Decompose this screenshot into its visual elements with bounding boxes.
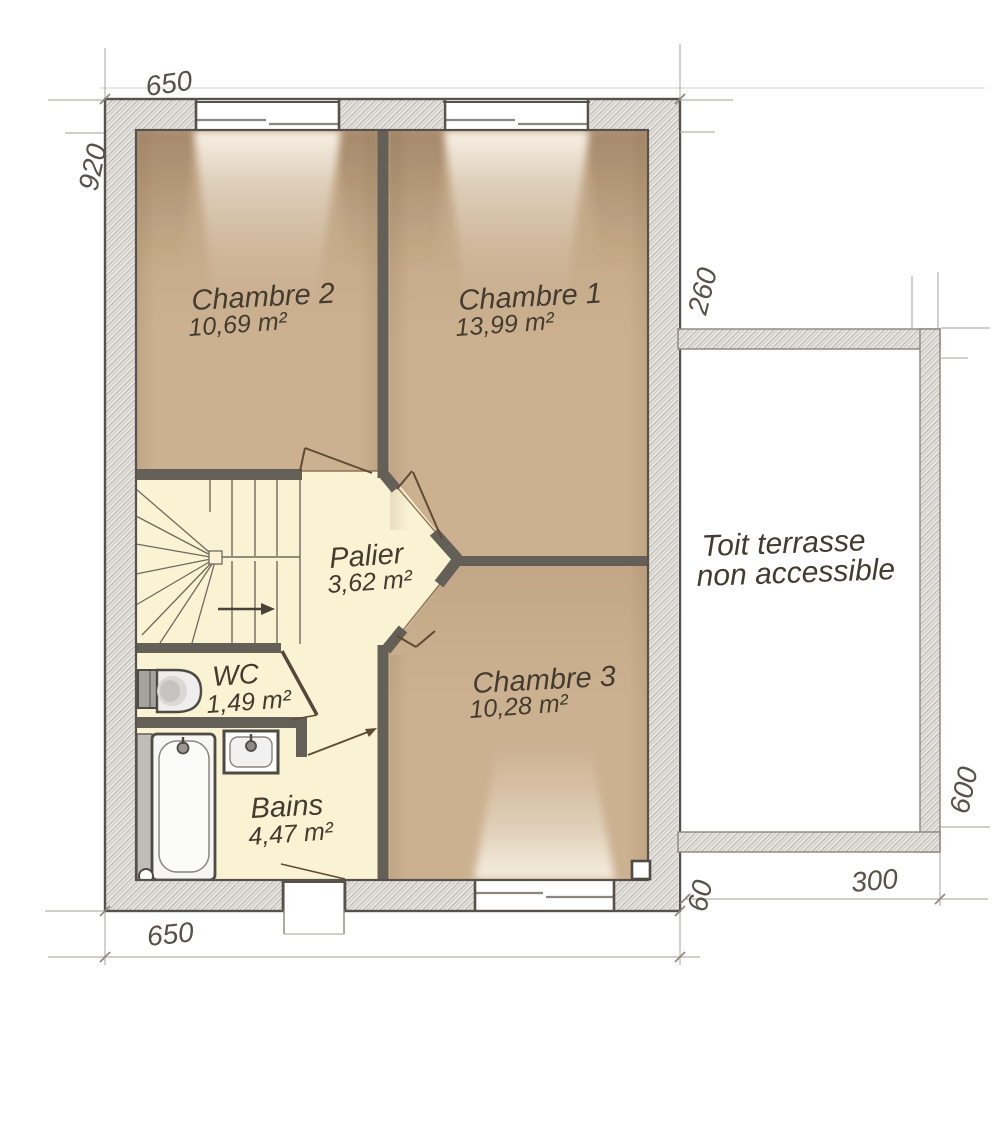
svg-text:300: 300 bbox=[850, 863, 900, 898]
svg-text:650: 650 bbox=[145, 916, 195, 952]
svg-text:non accessible: non accessible bbox=[696, 553, 895, 593]
svg-text:650: 650 bbox=[144, 65, 195, 102]
